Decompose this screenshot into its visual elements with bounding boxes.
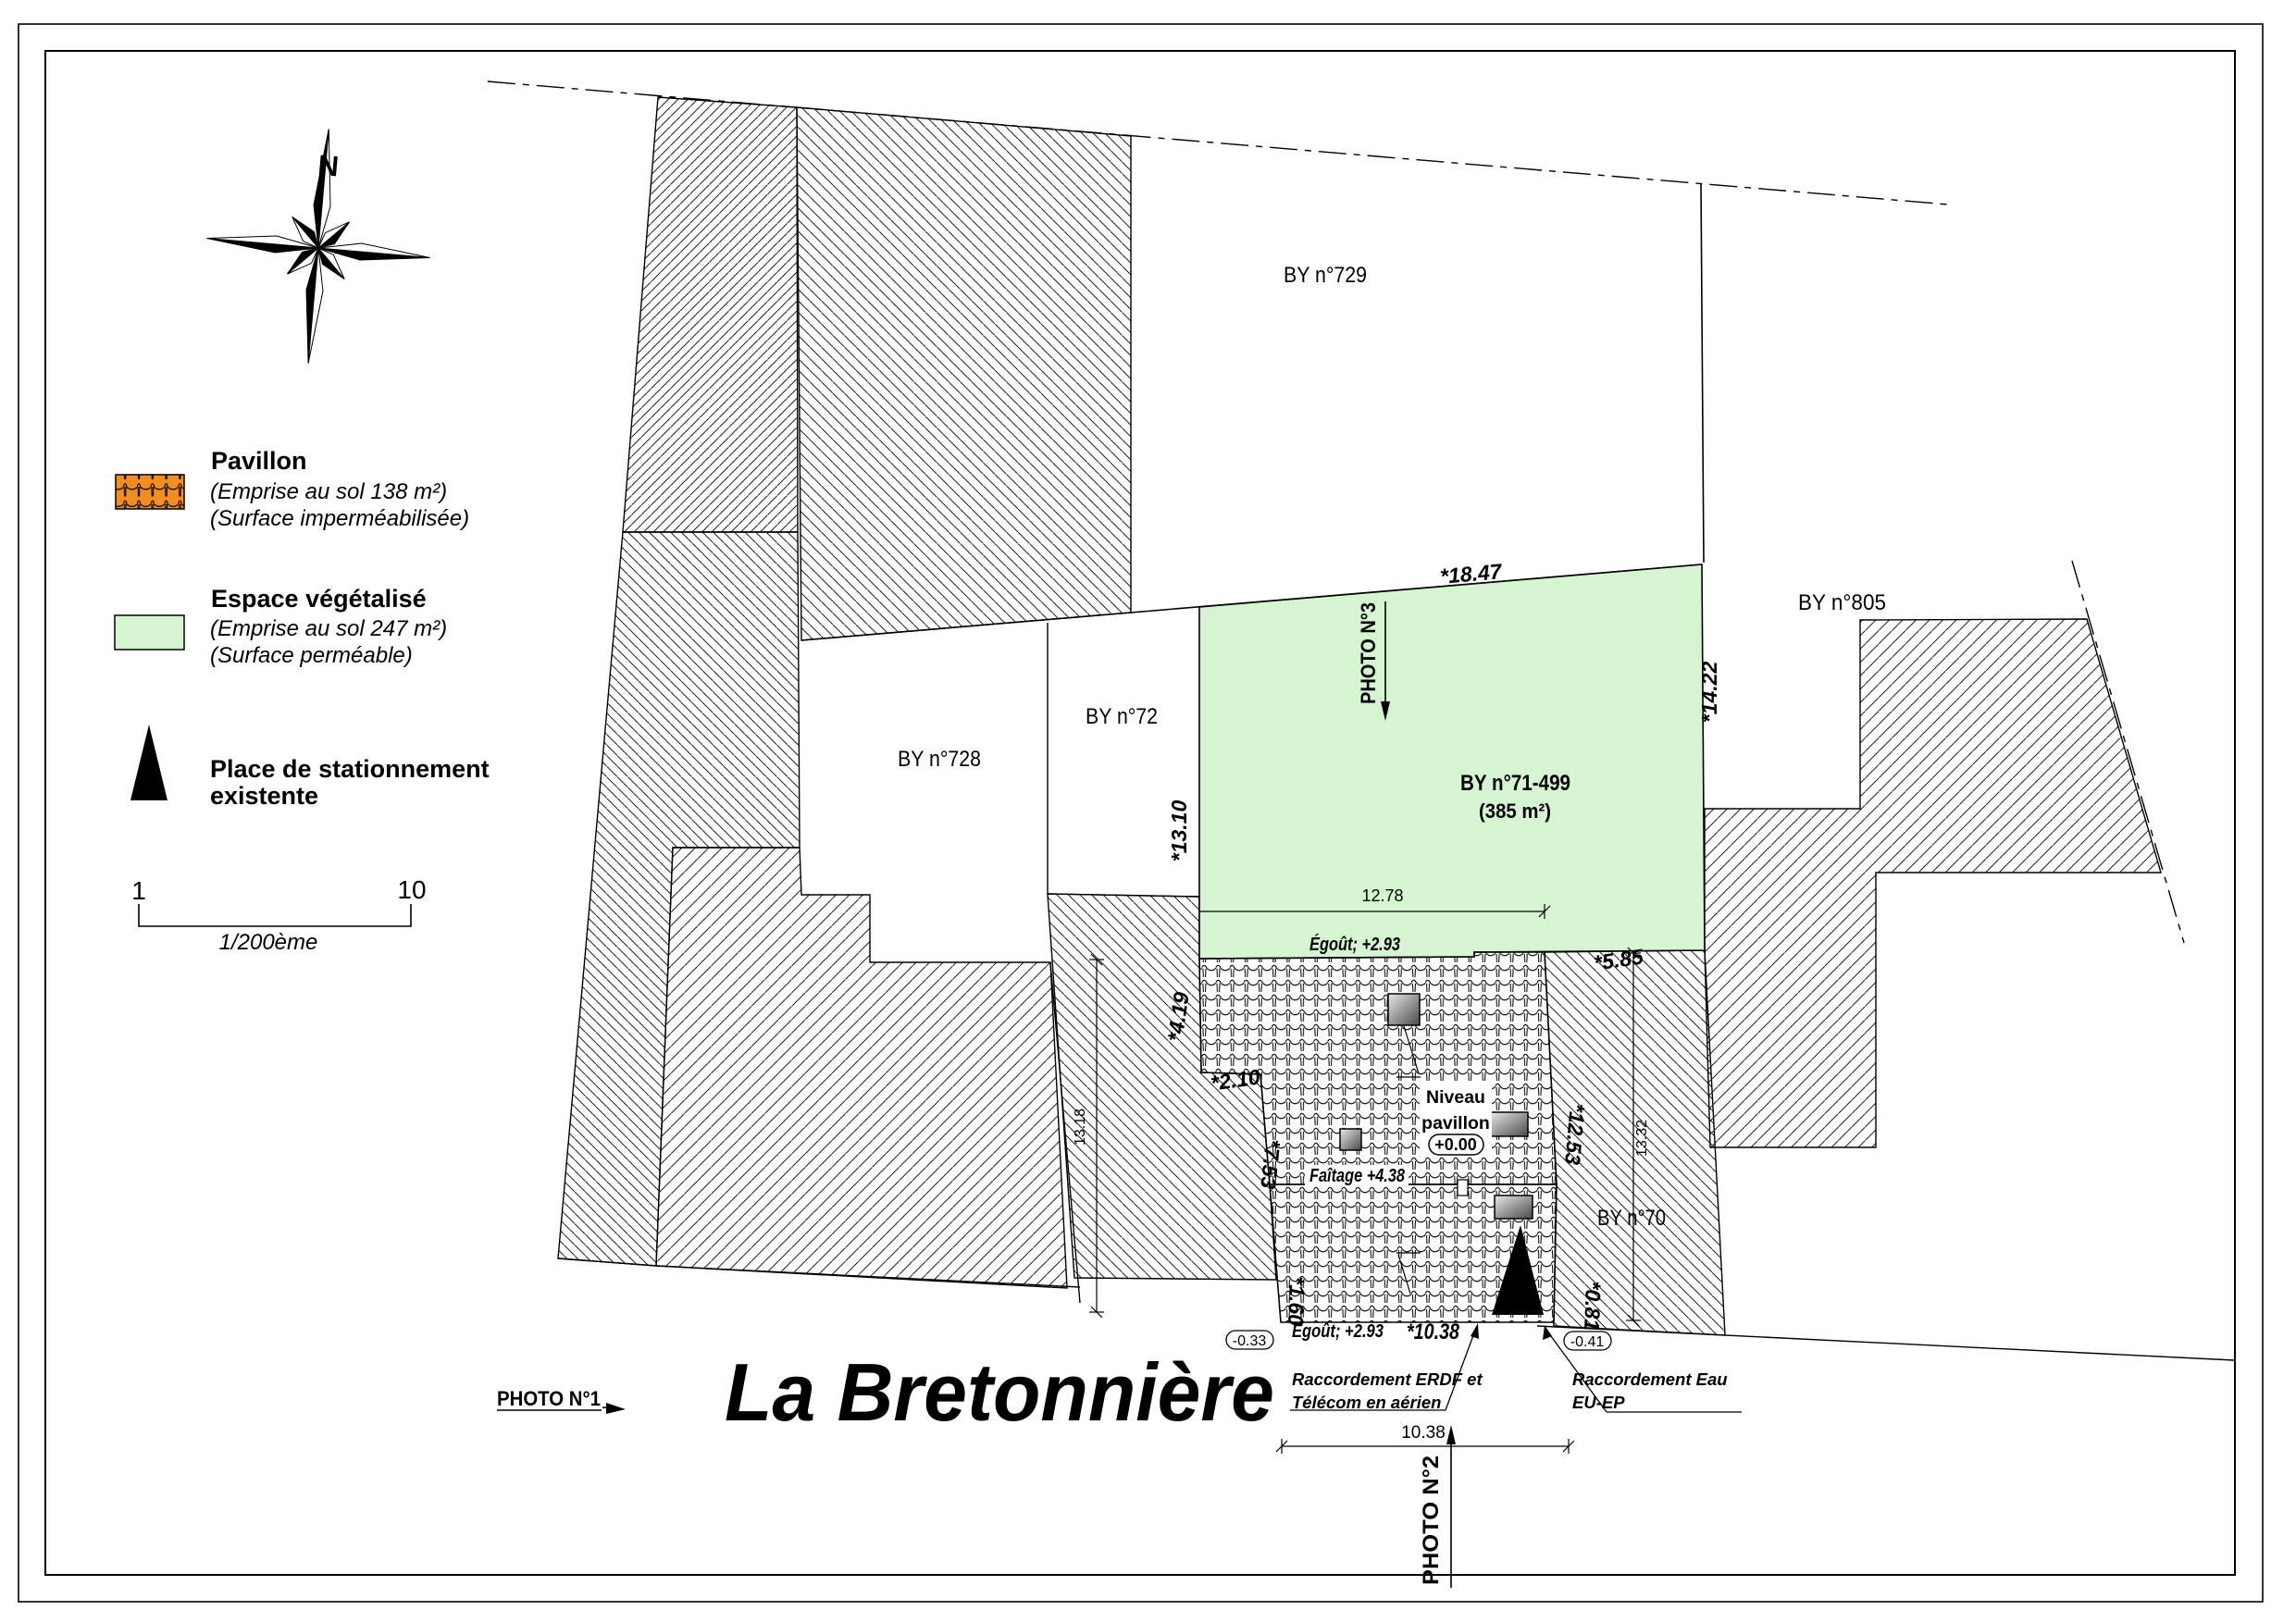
svg-text:La Bretonnière: La Bretonnière	[725, 1346, 1274, 1438]
svg-text:13.18: 13.18	[1073, 1109, 1088, 1146]
svg-text:13.32: 13.32	[1634, 1120, 1650, 1157]
svg-text:*1.60: *1.60	[1284, 1276, 1309, 1327]
svg-text:1/200ème: 1/200ème	[219, 930, 318, 955]
svg-text:Télécom en aérien: Télécom en aérien	[1292, 1393, 1441, 1412]
svg-text:Pavillon: Pavillon	[211, 447, 307, 475]
svg-text:Faîtage +4.38: Faîtage +4.38	[1309, 1166, 1406, 1186]
svg-text:12.78: 12.78	[1361, 886, 1403, 905]
svg-text:1: 1	[131, 876, 146, 905]
svg-text:N: N	[316, 149, 340, 183]
svg-text:pavillon: pavillon	[1421, 1113, 1490, 1134]
svg-text:PHOTO N°2: PHOTO N°2	[1419, 1456, 1444, 1585]
svg-text:(385 m²): (385 m²)	[1479, 799, 1551, 823]
svg-text:Place de stationnement: Place de stationnement	[210, 755, 490, 783]
svg-text:(Emprise au sol 138 m²): (Emprise au sol 138 m²)	[210, 479, 447, 504]
svg-text:Raccordement Eau: Raccordement Eau	[1572, 1369, 1728, 1389]
svg-text:(Surface perméable): (Surface perméable)	[210, 643, 413, 668]
svg-text:BY n°72: BY n°72	[1086, 704, 1158, 729]
svg-text:*13.10: *13.10	[1167, 800, 1191, 862]
svg-text:existente: existente	[210, 782, 318, 810]
svg-text:10: 10	[397, 875, 426, 904]
svg-text:Espace végétalisé: Espace végétalisé	[211, 585, 427, 613]
svg-text:*10.38: *10.38	[1407, 1319, 1460, 1344]
svg-text:+0.00: +0.00	[1434, 1135, 1477, 1154]
svg-text:BY n°728: BY n°728	[898, 747, 981, 772]
svg-text:BY n°729: BY n°729	[1284, 263, 1367, 288]
svg-text:PHOTO N°1: PHOTO N°1	[497, 1387, 601, 1410]
svg-text:10.38: 10.38	[1401, 1423, 1446, 1443]
svg-text:BY n°71-499: BY n°71-499	[1460, 771, 1570, 796]
svg-text:PHOTO N°3: PHOTO N°3	[1357, 602, 1380, 704]
svg-text:(Surface imperméabilisée): (Surface imperméabilisée)	[210, 506, 469, 531]
svg-text:Égoût; +2.93: Égoût; +2.93	[1309, 934, 1400, 955]
svg-text:BY n°805: BY n°805	[1798, 590, 1886, 615]
svg-text:(Emprise au sol 247 m²): (Emprise au sol 247 m²)	[210, 616, 447, 641]
svg-text:*14.22: *14.22	[1697, 662, 1721, 724]
svg-text:-0.41: -0.41	[1570, 1334, 1605, 1350]
svg-text:Egoût; +2.93: Egoût; +2.93	[1292, 1321, 1384, 1342]
svg-text:*0.81: *0.81	[1580, 1281, 1606, 1332]
svg-text:Niveau: Niveau	[1426, 1087, 1485, 1108]
svg-text:BY n°70: BY n°70	[1597, 1206, 1666, 1231]
